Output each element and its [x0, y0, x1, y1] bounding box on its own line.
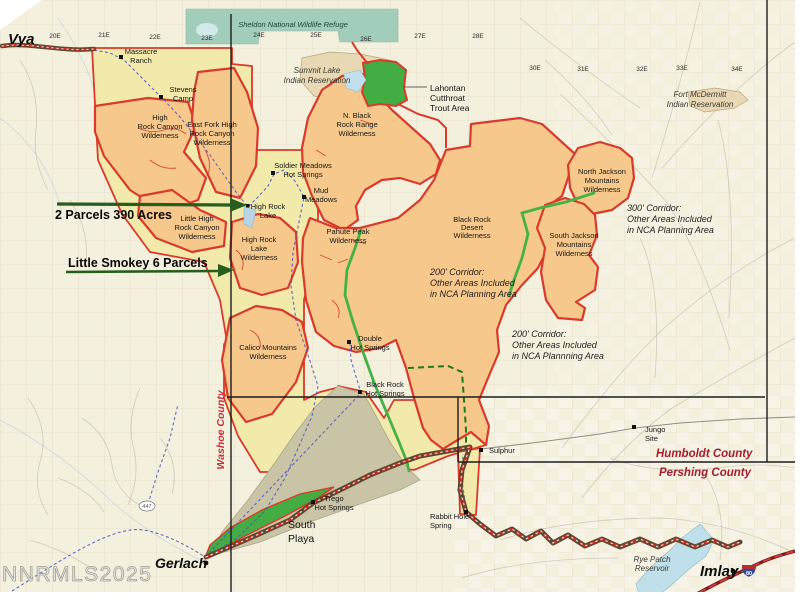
- north-jackson-wilderness-label: North JacksonMountainsWilderness: [578, 167, 626, 194]
- fort-mcdermitt-reservation-label: Fort McDermittIndian Reservation: [667, 90, 734, 109]
- range-label-34e: 34E: [731, 66, 743, 73]
- pahute-peak-wilderness-label: Pahute PeakWilderness: [327, 227, 370, 245]
- page-edge-bottom: [0, 592, 800, 600]
- mls-watermark: NNRMLS2025: [2, 563, 152, 586]
- lahontan-trout-area-label: Lahontan Cutthroat Trout Area: [430, 83, 470, 113]
- range-label-31e: 31E: [577, 66, 589, 73]
- east-fork-wilderness-label: East Fork HighRock CanyonWilderness: [187, 120, 237, 147]
- pershing-county-label: Pershing County: [659, 467, 752, 479]
- range-label-21e: 21E: [98, 32, 110, 39]
- range-label-24e: 24E: [253, 32, 265, 39]
- stevens-camp-label: StevensCamp: [169, 85, 196, 103]
- range-label-23e: 23E: [201, 35, 213, 42]
- range-label-28e: 28E: [472, 33, 484, 40]
- range-label-32e: 32E: [636, 66, 648, 73]
- route-447-label: 447: [142, 504, 151, 510]
- washoe-county-label: Washoe County: [215, 389, 227, 469]
- nca-parcel-map: Sheldon National Wildlife Refuge Summit …: [0, 0, 800, 600]
- page-edge-right: [795, 0, 800, 600]
- range-label-26e: 26E: [360, 36, 372, 43]
- interstate-80-number: 80: [746, 571, 752, 577]
- gerlach-town-label: Gerlach: [155, 555, 207, 571]
- callout-little-smokey-label: Little Smokey 6 Parcels: [68, 256, 208, 270]
- range-label-30e: 30E: [529, 65, 541, 72]
- black-rock-hot-springs-label: Black RockHot Springs: [365, 380, 404, 398]
- range-label-22e: 22E: [149, 34, 161, 41]
- map-screenshot: Sheldon National Wildlife Refuge Summit …: [0, 0, 800, 600]
- callout-2-parcels-label: 2 Parcels 390 Acres: [55, 208, 172, 222]
- range-label-33e: 33E: [676, 65, 688, 72]
- little-high-rock-wilderness-label: Little HighRock CanyonWilderness: [174, 214, 219, 241]
- lahontan-trout-parcel: [362, 60, 407, 106]
- range-label-20e: 20E: [49, 33, 61, 40]
- range-label-27e: 27E: [414, 33, 426, 40]
- rye-patch-reservoir-label: Rye PatchReservoir: [634, 555, 671, 573]
- vya-town-label: Vya: [8, 31, 34, 48]
- route-447-shield: 447: [139, 501, 155, 511]
- south-jackson-wilderness-label: South JacksonMountainsWilderness: [549, 231, 598, 258]
- sulphur-label: Sulphur: [489, 446, 515, 455]
- sheldon-refuge-label: Sheldon National Wildlife Refuge: [238, 20, 348, 29]
- range-label-25e: 25E: [310, 32, 322, 39]
- humboldt-county-label: Humboldt County: [656, 448, 753, 460]
- imlay-town-label: Imlay: [700, 563, 739, 580]
